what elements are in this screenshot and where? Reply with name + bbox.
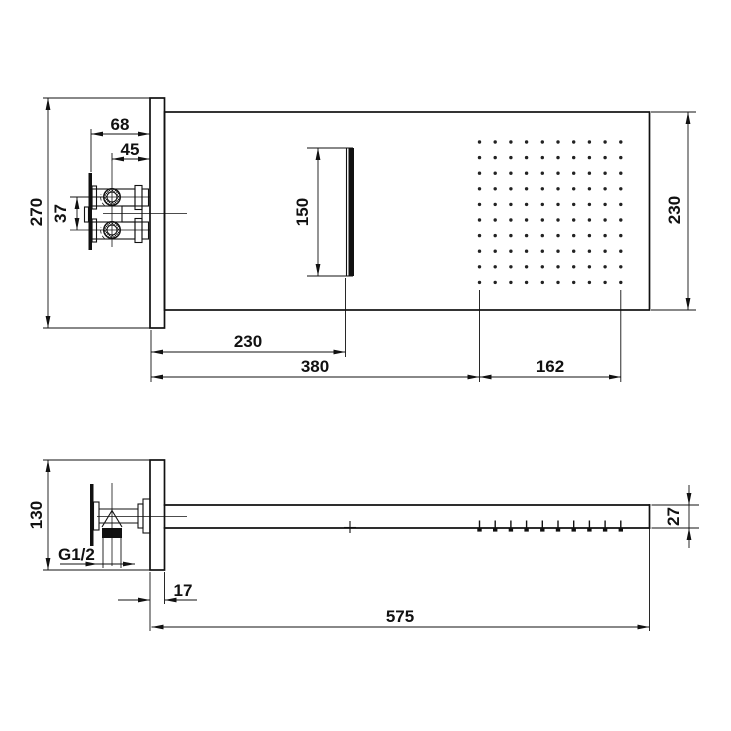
wall-plate-top-view (150, 98, 165, 328)
slot-center-mark (344, 521, 356, 533)
dim-label: 380 (301, 357, 329, 376)
dim-spray-field-width-162: 162 (480, 357, 621, 377)
dim-label: 17 (174, 581, 193, 600)
dim-label: 37 (51, 204, 70, 223)
dim-label: 27 (664, 507, 683, 526)
dim-valve-center-depth-45: 45 (112, 140, 150, 159)
dim-label: 150 (293, 198, 312, 226)
dim-label: 45 (121, 140, 140, 159)
dim-label: 130 (27, 501, 46, 529)
dim-label: 575 (386, 607, 414, 626)
dim-panel-thickness-27: 27 (664, 485, 689, 548)
valve-connector (122, 206, 142, 222)
dim-slot-offset-230: 230 (151, 332, 346, 352)
dim-panel-length-575: 575 (152, 607, 650, 627)
dim-label: 68 (111, 115, 130, 134)
top-view-dimensions: 270 68 45 37 150 230 380 162 (27, 98, 696, 382)
valve-assembly-side-view (90, 483, 187, 566)
dim-spray-start-offset-380: 380 (151, 357, 480, 377)
dim-valve-body-depth-68: 68 (91, 115, 150, 134)
dim-plate-thickness-17: 17 (118, 581, 197, 600)
shower-head-technical-drawing: 270 68 45 37 150 230 380 162 (0, 0, 731, 731)
waterfall-slot (347, 148, 355, 276)
dim-label: 162 (536, 357, 564, 376)
wall-plate-side-view (150, 460, 165, 570)
dim-plate-height-130: 130 (27, 460, 48, 570)
side-view-dimensions: 130 G1/2 17 575 27 (27, 460, 699, 631)
shower-panel-side-profile (165, 505, 650, 528)
dim-label: 230 (234, 332, 262, 351)
dim-plate-height-270: 270 (27, 98, 48, 328)
dim-label: 230 (665, 196, 684, 224)
shower-panel-outline (165, 112, 650, 310)
dim-inlet-thread-g12: G1/2 (58, 545, 135, 564)
nozzle-ticks-side-view (477, 521, 623, 532)
thread-label: G1/2 (58, 545, 95, 564)
drawing-svg: 270 68 45 37 150 230 380 162 (0, 0, 731, 731)
side-view (90, 460, 650, 570)
dim-waterfall-slot-150: 150 (293, 148, 318, 276)
spray-nozzle-grid (478, 140, 623, 284)
top-view (70, 98, 650, 328)
valve-assembly-top-view (70, 161, 187, 250)
dim-panel-depth-230: 230 (665, 112, 688, 310)
dim-label: 270 (27, 198, 46, 226)
